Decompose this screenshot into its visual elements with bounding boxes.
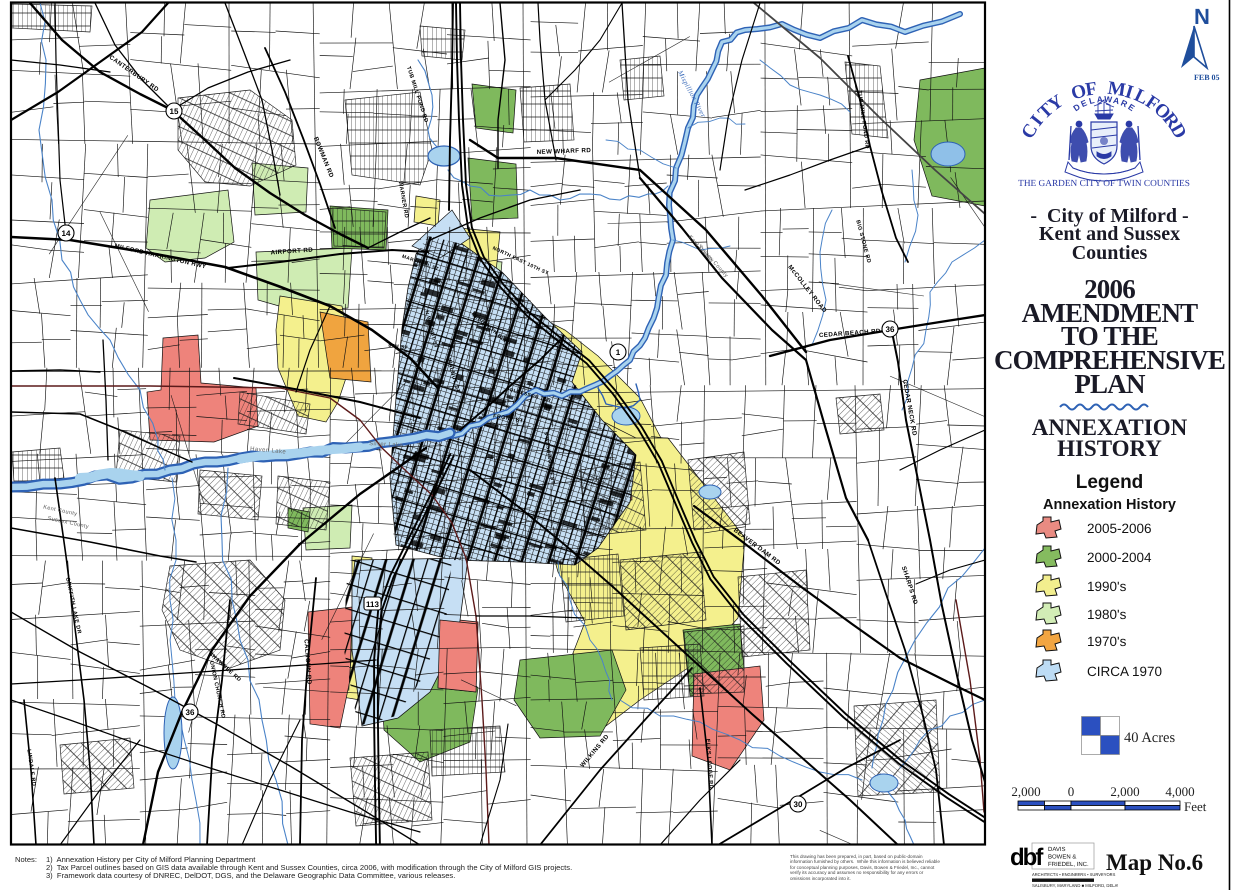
svg-text:36: 36 [886,325,895,334]
svg-text:30: 30 [794,800,803,809]
svg-text:2,000: 2,000 [1110,784,1139,799]
svg-text:4,000: 4,000 [1165,784,1194,799]
svg-text:ARCHITECTS • ENGINEERS • SURVE: ARCHITECTS • ENGINEERS • SURVEYORS [1032,872,1116,877]
svg-text:DAVIS: DAVIS [1048,846,1066,853]
svg-text:1990's: 1990's [1087,579,1127,594]
svg-text:2000-2004: 2000-2004 [1087,550,1152,565]
svg-text:2005-2006: 2005-2006 [1087,521,1152,536]
svg-text:dbf: dbf [1010,844,1044,871]
svg-text:E: E [1126,102,1137,114]
svg-text:1970's: 1970's [1087,634,1127,649]
svg-text:36: 36 [186,708,195,717]
svg-text:FEB 05: FEB 05 [1194,73,1220,82]
svg-text:113: 113 [366,600,379,609]
svg-text:2,000: 2,000 [1011,784,1040,799]
svg-text:BOWEN &: BOWEN & [1048,854,1076,861]
svg-text:14: 14 [62,229,71,238]
svg-text:1: 1 [616,348,621,357]
svg-text:FRIEDEL, INC.: FRIEDEL, INC. [1048,861,1089,868]
svg-text:CIRCA 1970: CIRCA 1970 [1087,664,1162,679]
svg-text:40 Acres: 40 Acres [1124,730,1175,746]
svg-text:0: 0 [1068,784,1075,799]
svg-text:1980's: 1980's [1087,607,1127,622]
svg-text:Feet: Feet [1184,799,1207,814]
svg-text:"THE GARDEN CITY OF TWIN COUNT: "THE GARDEN CITY OF TWIN COUNTIES" [1018,179,1190,189]
svg-text:15: 15 [170,107,179,116]
svg-text:SALISBURY, MARYLAND ■ MILFORD,: SALISBURY, MARYLAND ■ MILFORD, DELAWARE [1032,883,1118,888]
svg-text:N: N [1194,4,1210,29]
